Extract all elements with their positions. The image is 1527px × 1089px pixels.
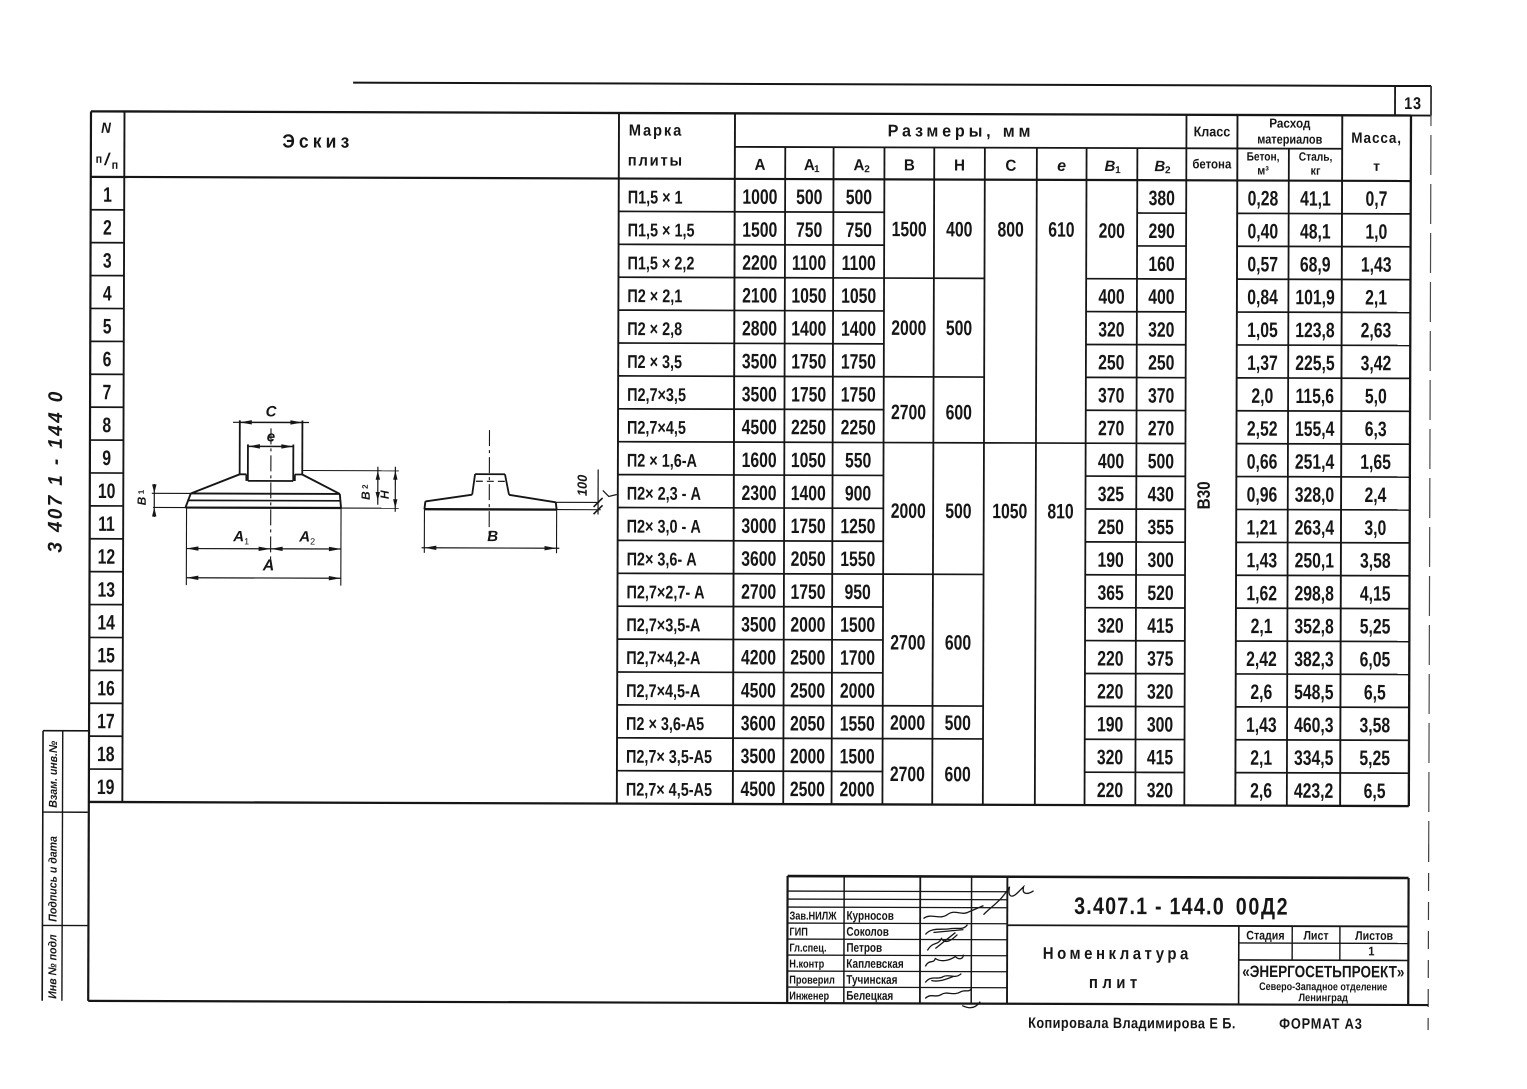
svg-text:2500: 2500 xyxy=(790,678,825,702)
svg-text:17: 17 xyxy=(97,709,115,733)
svg-text:А: А xyxy=(755,157,766,174)
svg-text:320: 320 xyxy=(1148,317,1174,341)
svg-text:3600: 3600 xyxy=(741,711,776,735)
svg-text:1050: 1050 xyxy=(841,284,876,308)
svg-text:2500: 2500 xyxy=(790,645,825,669)
svg-text:68,9: 68,9 xyxy=(1300,252,1331,276)
svg-text:2700: 2700 xyxy=(741,579,776,603)
svg-text:382,3: 382,3 xyxy=(1294,647,1333,671)
svg-text:16: 16 xyxy=(97,676,115,700)
svg-text:298,8: 298,8 xyxy=(1294,581,1333,605)
svg-text:П2,7×3,5: П2,7×3,5 xyxy=(627,384,686,405)
svg-text:А: А xyxy=(298,528,310,545)
svg-text:400: 400 xyxy=(1148,285,1174,309)
svg-text:А: А xyxy=(232,528,244,545)
svg-text:6,05: 6,05 xyxy=(1360,647,1391,671)
svg-text:328,0: 328,0 xyxy=(1295,482,1334,506)
svg-text:1,65: 1,65 xyxy=(1360,450,1391,474)
svg-text:ФОРМАТ А3: ФОРМАТ А3 xyxy=(1279,1015,1363,1033)
svg-text:П1,5 × 1: П1,5 × 1 xyxy=(628,187,683,208)
svg-text:2,0: 2,0 xyxy=(1251,384,1273,408)
svg-text:3500: 3500 xyxy=(742,349,777,373)
svg-text:В: В xyxy=(135,496,149,505)
svg-text:370: 370 xyxy=(1098,383,1124,407)
svg-text:2: 2 xyxy=(1165,165,1171,176)
svg-text:0,84: 0,84 xyxy=(1247,285,1278,309)
svg-text:Белецкая: Белецкая xyxy=(846,990,893,1003)
svg-text:190: 190 xyxy=(1097,712,1123,736)
svg-text:2050: 2050 xyxy=(790,711,825,735)
svg-text:С: С xyxy=(1005,157,1016,174)
svg-text:800: 800 xyxy=(997,217,1023,241)
svg-text:1050: 1050 xyxy=(791,448,826,472)
svg-text:Подпись и дата: Подпись и дата xyxy=(47,836,60,922)
svg-text:3,58: 3,58 xyxy=(1359,713,1390,737)
svg-text:750: 750 xyxy=(796,218,822,242)
svg-text:123,8: 123,8 xyxy=(1295,318,1334,342)
svg-text:Марка: Марка xyxy=(629,122,683,140)
svg-text:1,43: 1,43 xyxy=(1246,713,1277,737)
svg-text:2300: 2300 xyxy=(741,481,776,505)
svg-text:Сталь,: Сталь, xyxy=(1299,151,1333,164)
svg-text:48,1: 48,1 xyxy=(1300,219,1331,243)
svg-text:П2 × 3,5: П2 × 3,5 xyxy=(627,351,682,372)
svg-text:2: 2 xyxy=(103,215,112,239)
svg-text:290: 290 xyxy=(1148,219,1174,243)
svg-text:1700: 1700 xyxy=(840,645,875,669)
svg-text:550: 550 xyxy=(845,448,871,472)
svg-text:320: 320 xyxy=(1097,613,1123,637)
svg-text:430: 430 xyxy=(1148,482,1174,506)
svg-text:155,4: 155,4 xyxy=(1295,417,1335,441)
svg-text:0,7: 0,7 xyxy=(1365,187,1387,211)
svg-text:220: 220 xyxy=(1097,646,1123,670)
svg-text:18: 18 xyxy=(97,742,115,766)
svg-text:365: 365 xyxy=(1097,581,1123,605)
svg-text:2,52: 2,52 xyxy=(1247,416,1278,440)
svg-text:610: 610 xyxy=(1048,217,1074,241)
svg-text:С: С xyxy=(266,403,278,420)
svg-text:9: 9 xyxy=(102,446,111,470)
svg-text:1550: 1550 xyxy=(840,711,875,735)
svg-text:п: п xyxy=(96,153,103,166)
svg-text:1500: 1500 xyxy=(742,217,777,241)
svg-text:2700: 2700 xyxy=(890,762,925,786)
svg-text:400: 400 xyxy=(1098,284,1124,308)
svg-text:2000: 2000 xyxy=(890,711,925,735)
svg-text:4500: 4500 xyxy=(741,678,776,702)
svg-text:2,1: 2,1 xyxy=(1251,614,1273,638)
svg-text:0,57: 0,57 xyxy=(1247,252,1278,276)
svg-text:3,42: 3,42 xyxy=(1361,351,1392,375)
svg-text:400: 400 xyxy=(1098,449,1124,473)
svg-text:П2,7× 3,5-А5: П2,7× 3,5-А5 xyxy=(626,746,712,767)
svg-text:плит: плит xyxy=(1089,974,1142,992)
svg-text:1050: 1050 xyxy=(791,283,826,307)
svg-text:14: 14 xyxy=(97,610,115,634)
svg-text:«ЭНЕРГОСЕТЬПРОЕКТ»: «ЭНЕРГОСЕТЬПРОЕКТ» xyxy=(1242,963,1404,982)
svg-text:5,25: 5,25 xyxy=(1360,614,1391,638)
svg-text:270: 270 xyxy=(1148,416,1174,440)
svg-text:10: 10 xyxy=(98,479,116,503)
svg-text:1750: 1750 xyxy=(791,349,826,373)
svg-text:13: 13 xyxy=(1404,95,1422,113)
svg-text:0,40: 0,40 xyxy=(1247,219,1278,243)
svg-text:220: 220 xyxy=(1097,778,1123,802)
svg-text:1,0: 1,0 xyxy=(1365,219,1387,243)
svg-text:4,15: 4,15 xyxy=(1360,581,1391,605)
svg-text:270: 270 xyxy=(1098,416,1124,440)
svg-text:15: 15 xyxy=(97,643,115,667)
svg-text:1250: 1250 xyxy=(840,514,875,538)
svg-text:Лист: Лист xyxy=(1303,929,1328,943)
svg-text:Размеры, мм: Размеры, мм xyxy=(888,121,1035,141)
svg-text:600: 600 xyxy=(944,762,970,786)
svg-text:2000: 2000 xyxy=(840,678,875,702)
svg-text:12: 12 xyxy=(98,544,116,568)
svg-text:423,2: 423,2 xyxy=(1294,778,1333,802)
svg-text:П2× 2,3 - А: П2× 2,3 - А xyxy=(627,483,701,504)
svg-text:380: 380 xyxy=(1149,186,1175,210)
svg-text:П1,5 × 2,2: П1,5 × 2,2 xyxy=(627,253,694,274)
svg-text:2800: 2800 xyxy=(742,316,777,340)
svg-text:1,43: 1,43 xyxy=(1246,548,1277,572)
svg-text:2,1: 2,1 xyxy=(1250,745,1272,769)
svg-text:750: 750 xyxy=(846,218,872,242)
svg-text:11: 11 xyxy=(98,512,115,536)
svg-text:бетона: бетона xyxy=(1192,157,1231,172)
svg-text:520: 520 xyxy=(1147,581,1173,605)
svg-text:Гл.спец.: Гл.спец. xyxy=(789,943,826,955)
svg-text:2,1: 2,1 xyxy=(1365,285,1387,309)
svg-text:плиты: плиты xyxy=(628,152,684,170)
svg-text:1,43: 1,43 xyxy=(1361,252,1392,276)
svg-text:4500: 4500 xyxy=(741,777,776,801)
svg-text:500: 500 xyxy=(945,499,971,523)
svg-text:500: 500 xyxy=(796,185,822,209)
svg-text:2500: 2500 xyxy=(790,777,825,801)
svg-text:В: В xyxy=(1154,158,1165,175)
svg-text:00Д2: 00Д2 xyxy=(1236,893,1289,921)
svg-text:П2 × 2,8: П2 × 2,8 xyxy=(627,318,682,339)
svg-text:2000: 2000 xyxy=(790,744,825,768)
svg-text:1750: 1750 xyxy=(790,580,825,604)
svg-text:А: А xyxy=(262,557,275,574)
svg-text:334,5: 334,5 xyxy=(1294,746,1333,770)
svg-text:Н: Н xyxy=(954,157,965,174)
svg-text:3 407 1 - 144 0: 3 407 1 - 144 0 xyxy=(44,389,67,552)
svg-text:1400: 1400 xyxy=(841,316,876,340)
svg-text:Петров: Петров xyxy=(846,942,882,955)
svg-text:П2 × 3,6-А5: П2 × 3,6-А5 xyxy=(626,713,704,734)
svg-text:1400: 1400 xyxy=(791,316,826,340)
svg-text:Ленинград: Ленинград xyxy=(1298,993,1348,1005)
svg-text:П2× 3,6- А: П2× 3,6- А xyxy=(627,549,697,570)
svg-text:1750: 1750 xyxy=(791,382,826,406)
svg-text:1050: 1050 xyxy=(992,499,1027,523)
svg-text:Инв № подл: Инв № подл xyxy=(47,934,60,999)
svg-text:600: 600 xyxy=(946,400,972,424)
svg-text:300: 300 xyxy=(1147,712,1173,736)
svg-text:Н: Н xyxy=(378,490,392,499)
svg-text:3,58: 3,58 xyxy=(1360,548,1391,572)
svg-text:3600: 3600 xyxy=(741,546,776,570)
svg-text:320: 320 xyxy=(1097,745,1123,769)
svg-text:2000: 2000 xyxy=(840,777,875,801)
svg-text:250: 250 xyxy=(1098,515,1124,539)
svg-text:300: 300 xyxy=(1147,548,1173,572)
svg-text:3500: 3500 xyxy=(741,612,776,636)
svg-text:3000: 3000 xyxy=(741,514,776,538)
svg-text:2000: 2000 xyxy=(891,316,926,340)
svg-text:3500: 3500 xyxy=(741,744,776,768)
svg-text:6,3: 6,3 xyxy=(1365,417,1387,441)
svg-text:2: 2 xyxy=(864,164,870,175)
svg-text:251,4: 251,4 xyxy=(1295,449,1335,473)
svg-text:А: А xyxy=(854,157,865,174)
svg-text:П2,7×3,5-А: П2,7×3,5-А xyxy=(626,614,700,635)
svg-text:2050: 2050 xyxy=(791,547,826,571)
svg-text:3500: 3500 xyxy=(742,382,777,406)
svg-text:6,5: 6,5 xyxy=(1364,779,1386,803)
svg-text:П2× 3,0 - А: П2× 3,0 - А xyxy=(627,516,701,537)
svg-text:1: 1 xyxy=(1115,165,1121,176)
svg-text:п: п xyxy=(112,159,119,172)
svg-text:2,6: 2,6 xyxy=(1250,778,1272,802)
svg-text:2000: 2000 xyxy=(891,499,926,523)
svg-text:250,1: 250,1 xyxy=(1295,548,1334,572)
svg-text:6,5: 6,5 xyxy=(1364,680,1386,704)
svg-text:N: N xyxy=(101,120,111,137)
svg-text:325: 325 xyxy=(1098,482,1124,506)
svg-text:В: В xyxy=(359,491,373,500)
svg-text:8: 8 xyxy=(102,413,111,437)
svg-text:375: 375 xyxy=(1147,646,1173,670)
svg-text:950: 950 xyxy=(845,580,871,604)
svg-text:3,0: 3,0 xyxy=(1364,516,1386,540)
svg-text:Класс: Класс xyxy=(1194,124,1231,140)
svg-text:Эскиз: Эскиз xyxy=(282,130,353,152)
svg-text:1500: 1500 xyxy=(840,613,875,637)
svg-text:3: 3 xyxy=(103,248,112,272)
svg-text:5,0: 5,0 xyxy=(1365,384,1387,408)
svg-text:В: В xyxy=(487,528,498,545)
svg-text:2,6: 2,6 xyxy=(1250,680,1272,704)
svg-text:Тучинская: Тучинская xyxy=(846,974,897,987)
svg-text:материалов: материалов xyxy=(1257,132,1322,147)
svg-text:Листов: Листов xyxy=(1355,929,1393,943)
svg-text:2700: 2700 xyxy=(890,630,925,654)
svg-text:Расход: Расход xyxy=(1269,116,1310,131)
svg-text:1550: 1550 xyxy=(840,547,875,571)
svg-text:415: 415 xyxy=(1147,745,1173,769)
svg-text:2200: 2200 xyxy=(742,250,777,274)
svg-text:2000: 2000 xyxy=(790,612,825,636)
svg-text:1500: 1500 xyxy=(840,744,875,768)
svg-text:500: 500 xyxy=(1148,449,1174,473)
svg-text:Н.контр: Н.контр xyxy=(789,959,824,971)
svg-text:0,28: 0,28 xyxy=(1248,186,1279,210)
svg-text:810: 810 xyxy=(1047,499,1073,523)
svg-text:Взам. инв.№: Взам. инв.№ xyxy=(47,741,60,808)
svg-text:1,37: 1,37 xyxy=(1247,351,1278,375)
svg-text:190: 190 xyxy=(1098,548,1124,572)
svg-text:1: 1 xyxy=(814,164,820,175)
svg-text:1: 1 xyxy=(137,489,146,494)
svg-text:1400: 1400 xyxy=(791,481,826,505)
svg-text:Каплевская: Каплевская xyxy=(846,958,903,971)
svg-text:1750: 1750 xyxy=(791,514,826,538)
svg-text:1,05: 1,05 xyxy=(1247,318,1278,342)
svg-text:115,6: 115,6 xyxy=(1296,384,1335,408)
svg-text:м³: м³ xyxy=(1257,165,1269,178)
svg-text:3.407.1 - 144.0: 3.407.1 - 144.0 xyxy=(1074,892,1225,920)
svg-text:4: 4 xyxy=(103,281,112,305)
svg-text:Соколов: Соколов xyxy=(846,926,889,939)
svg-text:500: 500 xyxy=(846,185,872,209)
svg-text:160: 160 xyxy=(1148,252,1174,276)
svg-text:1100: 1100 xyxy=(792,251,826,275)
svg-text:225,5: 225,5 xyxy=(1295,351,1334,375)
svg-text:1: 1 xyxy=(1368,944,1375,959)
svg-text:100: 100 xyxy=(574,474,589,496)
svg-text:Бетон,: Бетон, xyxy=(1247,151,1280,164)
svg-text:Копировала Владимирова Е Б.: Копировала Владимирова Е Б. xyxy=(1028,1014,1236,1032)
svg-text:В: В xyxy=(1104,158,1115,175)
svg-text:7: 7 xyxy=(102,380,111,404)
svg-text:П2,7×4,5: П2,7×4,5 xyxy=(627,417,686,438)
svg-text:500: 500 xyxy=(946,316,972,340)
svg-text:250: 250 xyxy=(1098,350,1124,374)
svg-text:В: В xyxy=(904,157,915,174)
svg-text:2250: 2250 xyxy=(841,415,876,439)
svg-text:1750: 1750 xyxy=(841,382,876,406)
svg-text:ГИП: ГИП xyxy=(789,927,807,939)
svg-text:320: 320 xyxy=(1147,679,1173,703)
svg-text:400: 400 xyxy=(946,217,972,241)
svg-text:2: 2 xyxy=(361,484,370,489)
svg-text:1600: 1600 xyxy=(742,448,777,472)
svg-text:П2,7×4,2-А: П2,7×4,2-А xyxy=(626,647,700,668)
svg-text:355: 355 xyxy=(1148,515,1174,539)
svg-text:220: 220 xyxy=(1097,679,1123,703)
svg-text:кг: кг xyxy=(1311,165,1321,178)
svg-text:0,96: 0,96 xyxy=(1247,482,1278,506)
svg-text:2: 2 xyxy=(310,537,315,547)
svg-text:415: 415 xyxy=(1147,614,1173,638)
svg-text:548,5: 548,5 xyxy=(1294,680,1333,704)
svg-text:1,21: 1,21 xyxy=(1247,515,1278,539)
svg-text:1100: 1100 xyxy=(842,251,876,275)
svg-text:320: 320 xyxy=(1147,778,1173,802)
svg-text:П2,7×4,5-А: П2,7×4,5-А xyxy=(626,680,700,701)
svg-text:5: 5 xyxy=(103,314,112,338)
svg-text:1750: 1750 xyxy=(841,349,876,373)
svg-text:250: 250 xyxy=(1148,350,1174,374)
svg-text:П1,5 × 1,5: П1,5 × 1,5 xyxy=(628,220,695,241)
svg-text:370: 370 xyxy=(1148,383,1174,407)
svg-text:900: 900 xyxy=(845,481,871,505)
svg-text:Зав.НИЛЖ: Зав.НИЛЖ xyxy=(789,911,837,923)
svg-text:2100: 2100 xyxy=(742,283,777,307)
svg-text:е: е xyxy=(1057,158,1066,175)
svg-text:2,42: 2,42 xyxy=(1246,647,1277,671)
svg-text:Курносов: Курносов xyxy=(846,910,893,923)
svg-text:Стадия: Стадия xyxy=(1246,929,1284,943)
svg-text:6: 6 xyxy=(103,347,112,371)
svg-text:1: 1 xyxy=(244,536,249,546)
svg-text:Инженер: Инженер xyxy=(789,991,829,1003)
svg-text:Масса,: Масса, xyxy=(1351,130,1402,147)
svg-text:101,9: 101,9 xyxy=(1295,285,1334,309)
svg-text:13: 13 xyxy=(97,577,115,601)
svg-text:4500: 4500 xyxy=(742,415,777,439)
svg-text:5,25: 5,25 xyxy=(1359,746,1390,770)
svg-text:460,3: 460,3 xyxy=(1294,713,1333,737)
svg-text:352,8: 352,8 xyxy=(1294,614,1333,638)
svg-text:1,62: 1,62 xyxy=(1246,581,1277,605)
svg-text:П2,7×2,7- А: П2,7×2,7- А xyxy=(626,582,704,603)
svg-text:4200: 4200 xyxy=(741,645,776,669)
svg-text:П2 × 1,6-А: П2 × 1,6-А xyxy=(627,450,697,471)
svg-text:19: 19 xyxy=(97,775,115,799)
svg-text:320: 320 xyxy=(1098,317,1124,341)
svg-text:т: т xyxy=(1373,158,1380,174)
svg-text:В30: В30 xyxy=(1194,481,1215,509)
svg-text:41,1: 41,1 xyxy=(1300,186,1331,210)
svg-text:П2 × 2,1: П2 × 2,1 xyxy=(627,285,682,306)
svg-text:П2,7× 4,5-А5: П2,7× 4,5-А5 xyxy=(626,779,712,800)
svg-text:1: 1 xyxy=(103,183,112,207)
svg-text:2,4: 2,4 xyxy=(1365,483,1388,507)
svg-text:Проверил: Проверил xyxy=(789,975,835,987)
svg-text:200: 200 xyxy=(1099,219,1125,243)
svg-text:2250: 2250 xyxy=(791,415,826,439)
svg-text:1000: 1000 xyxy=(742,185,777,209)
svg-text:2700: 2700 xyxy=(891,400,926,424)
svg-text:0,66: 0,66 xyxy=(1247,449,1278,473)
svg-text:500: 500 xyxy=(945,711,971,735)
svg-text:263,4: 263,4 xyxy=(1295,515,1335,539)
svg-text:1500: 1500 xyxy=(892,217,927,241)
svg-text:600: 600 xyxy=(945,630,971,654)
svg-text:2,63: 2,63 xyxy=(1361,318,1392,342)
svg-text:Номенклатура: Номенклатура xyxy=(1043,945,1192,964)
